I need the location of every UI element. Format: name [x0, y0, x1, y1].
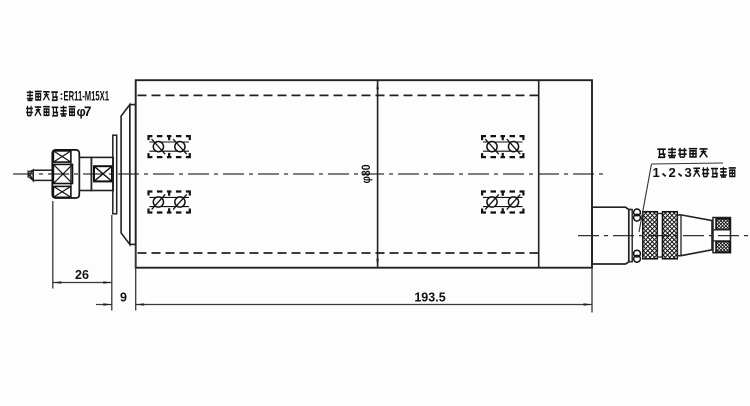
svg-text:3: 3	[685, 165, 692, 180]
svg-text:1: 1	[653, 165, 660, 180]
svg-text:9: 9	[120, 291, 127, 305]
svg-text:φ80: φ80	[361, 165, 373, 184]
svg-text:2: 2	[669, 165, 676, 180]
svg-text:ER11-M15X1: ER11-M15X1	[64, 88, 110, 104]
svg-text:193.5: 193.5	[414, 291, 445, 305]
svg-text:7: 7	[84, 104, 92, 119]
svg-text:26: 26	[75, 268, 89, 282]
